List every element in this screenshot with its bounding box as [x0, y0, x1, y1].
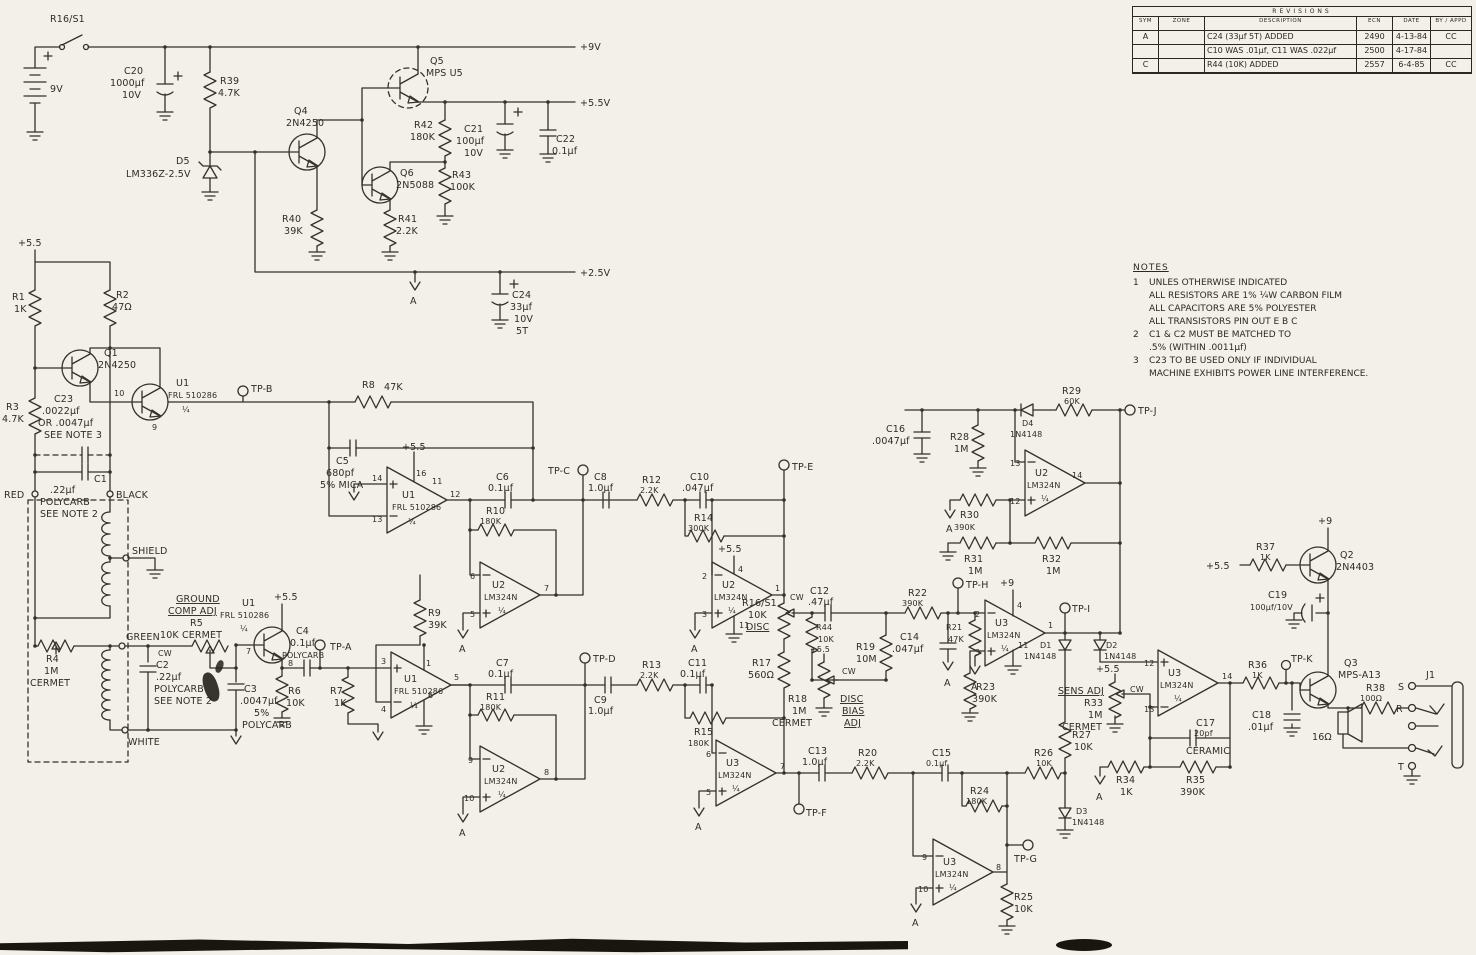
- r5-cw: CW: [158, 649, 172, 658]
- note-num: [1133, 368, 1149, 381]
- u2c-val: LM324N: [484, 777, 518, 786]
- r28-ref: R28: [950, 432, 969, 443]
- r28-symbol: [972, 425, 984, 461]
- r44-val: 10K: [818, 635, 834, 644]
- note-line: MACHINE EXHIBITS POWER LINE INTERFERENCE…: [1133, 368, 1421, 381]
- u1c-pin14: 14: [372, 474, 382, 483]
- c21-val: 100µf: [456, 136, 485, 147]
- c9-ref: C9: [594, 695, 607, 706]
- tp-k-circle: [1282, 661, 1291, 670]
- c19-val: 100µf/10V: [1250, 603, 1293, 612]
- agnd-r30-label: A: [946, 524, 953, 535]
- note-text: ALL RESISTORS ARE 1% ¼W CARBON FILM: [1149, 290, 1342, 303]
- u3b-frac: ¼: [1001, 644, 1009, 653]
- r5-ref: R5: [190, 618, 203, 629]
- tp-c-label: TP-C: [547, 466, 570, 477]
- c10-symbol: [700, 492, 706, 508]
- u3c-ref: U3: [943, 857, 956, 868]
- r38-ref: R38: [1366, 683, 1385, 694]
- tp-d-label: TP-D: [592, 654, 616, 665]
- u2b-pin3: 3: [702, 610, 707, 619]
- tp-c-circle: [578, 465, 588, 475]
- r9-symbol: [414, 600, 426, 636]
- gnd-r41: [382, 252, 398, 260]
- note-num: [1133, 342, 1149, 355]
- u1d-frac: ¼: [410, 701, 418, 710]
- c23-symbol: [82, 447, 88, 463]
- c4-symbol: [304, 660, 310, 676]
- r34-val: 1K: [1120, 787, 1133, 798]
- q4-ref: Q4: [294, 106, 308, 117]
- q6-symbol: [372, 171, 391, 200]
- r16-ref: R16/S1: [742, 598, 777, 609]
- u3d-pin12: 12: [1144, 659, 1154, 668]
- r20-ref: R20: [858, 748, 877, 759]
- rev-row-by: CC: [1431, 59, 1471, 73]
- gnd-u2b-pin11: [726, 634, 742, 642]
- note-line: .5% (WITHIN .0011µf): [1133, 342, 1421, 355]
- u1c-pin13: 13: [372, 515, 382, 524]
- q6-ref: Q6: [400, 168, 414, 179]
- r42-val: 180K: [410, 132, 436, 143]
- u1a-val: FRL 510286: [168, 391, 217, 400]
- u2a-ref: U2: [492, 580, 505, 591]
- r29-val: 60K: [1064, 397, 1080, 406]
- rev-row-sym: A: [1133, 31, 1159, 45]
- jack-t-contact: [1409, 763, 1416, 770]
- r11-val: 180K: [480, 703, 502, 712]
- r25-val: 10K: [1014, 904, 1033, 915]
- p55-r18: +5.5: [810, 645, 830, 654]
- r12-val: 2.2K: [640, 486, 659, 495]
- q1-ref: Q1: [104, 348, 118, 359]
- r36-ref: R36: [1248, 660, 1267, 671]
- speaker-symbol: [1338, 704, 1362, 742]
- r9-ref: R9: [428, 608, 441, 619]
- sens-adj-label: SENS ADJ: [1058, 686, 1104, 697]
- r34-symbol: [1108, 761, 1144, 773]
- tp-g-label: TP-G: [1013, 854, 1037, 865]
- q3-ref: Q3: [1344, 658, 1358, 669]
- p55-u1b: +5.5: [274, 592, 298, 603]
- c5-val: 680pf: [326, 468, 355, 479]
- r26-ref: R26: [1034, 748, 1053, 759]
- r44-ref: R44: [816, 623, 832, 632]
- c3-note: POLYCARB: [242, 720, 292, 731]
- r35-val: 390K: [1180, 787, 1206, 798]
- c7-ref: C7: [496, 658, 509, 669]
- u2c-pin8: 8: [544, 768, 549, 777]
- agnd-u3a-label: A: [695, 822, 702, 833]
- red-lead-label: RED: [4, 490, 24, 501]
- u1d-pin5: 5: [454, 673, 459, 682]
- c16-symbol: [914, 432, 930, 438]
- c17-ref: C17: [1196, 718, 1215, 729]
- gnd-jack-t: [1404, 776, 1420, 784]
- tp-e-label: TP-E: [791, 462, 813, 473]
- r18-ref: R18: [788, 694, 807, 705]
- rev-row-desc: R44 (10K) ADDED: [1205, 59, 1357, 73]
- q2-val: 2N4403: [1336, 562, 1374, 573]
- r8-symbol: [355, 396, 391, 408]
- p9-q2: +9: [1318, 516, 1332, 527]
- c6-val: 0.1µf: [488, 483, 514, 494]
- r30-symbol: [960, 494, 996, 506]
- u2b-pin2: 2: [702, 572, 707, 581]
- r10-val: 180K: [480, 517, 502, 526]
- r33-val: 1M: [1088, 710, 1103, 721]
- p55-left: +5.5: [18, 238, 42, 249]
- d3-symbol: [1059, 808, 1071, 818]
- c1-val: .22µf: [50, 485, 76, 496]
- u3a-pin7: 7: [780, 762, 785, 771]
- gnd-r23: [962, 713, 978, 721]
- r38-symbol: [1361, 702, 1397, 714]
- agnd-u3c-label: A: [912, 918, 919, 929]
- c18-symbol: [1284, 714, 1300, 720]
- q2-ref: Q2: [1340, 550, 1354, 561]
- c23-val: .0022µf: [42, 406, 80, 417]
- gnd-u3b-pin11: [1005, 666, 1021, 674]
- agnd-r21: [970, 666, 980, 674]
- u1a-pin10: 10: [114, 389, 124, 398]
- u1c-frac: ¼: [408, 517, 416, 526]
- note-line: 2C1 & C2 MUST BE MATCHED TO: [1133, 329, 1421, 342]
- tp-b-label: TP-B: [250, 384, 273, 395]
- r42-symbol: [439, 120, 451, 156]
- gnd-shield: [147, 570, 163, 578]
- r19-ref: R19: [856, 642, 875, 653]
- note-line: 1UNLES OTHERWISE INDICATED: [1133, 277, 1421, 290]
- r15-ref: R15: [694, 727, 713, 738]
- c9-symbol: [605, 677, 611, 693]
- tp-h-label: TP-H: [965, 580, 989, 591]
- u2d-val: LM324N: [1027, 481, 1061, 490]
- gnd-c20: [157, 112, 173, 120]
- u1a-symbol: [142, 388, 161, 417]
- u2c-frac: ¼: [498, 790, 506, 799]
- c1-extra: POLYCARB: [40, 497, 90, 508]
- r13-val: 2.2K: [640, 671, 659, 680]
- u1c-pin11: 11: [432, 477, 442, 486]
- u2b-pin1: 1: [775, 584, 780, 593]
- r27-val: 10K: [1074, 742, 1093, 753]
- c10-val: .047µf: [682, 483, 714, 494]
- c13-ref: C13: [808, 746, 827, 757]
- u3d-pin14: 14: [1222, 672, 1232, 681]
- tp-j-circle: [1125, 405, 1135, 415]
- r18-extra: CERMET: [772, 718, 812, 729]
- u1a-frac: ¼: [182, 405, 190, 414]
- u3b-ref: U3: [995, 618, 1008, 629]
- u1d-ref: U1: [404, 674, 417, 685]
- u1d-polarity: [394, 665, 401, 702]
- c15-ref: C15: [932, 748, 951, 759]
- c5-extra: 5% MICA: [320, 480, 364, 491]
- gnd-d5: [202, 192, 218, 200]
- wire-net-output: [1100, 528, 1452, 776]
- sw-ref: R16/S1: [50, 14, 85, 25]
- schematic-canvas: R16/S1 9V C201000µf10V R394.7K D5LM336Z-…: [0, 0, 1476, 955]
- u3d-ref: U3: [1168, 668, 1181, 679]
- u2b-pin4: 4: [738, 565, 743, 574]
- disc-bias-2: BIAS: [842, 706, 864, 717]
- r42-ref: R42: [414, 120, 433, 131]
- rev-row-by: [1431, 45, 1471, 59]
- c15-val: 0.1µf: [926, 759, 947, 768]
- r33-wiper-arrow: [1116, 690, 1128, 698]
- r7-ref: R7: [330, 686, 343, 697]
- r26-val: 10K: [1036, 759, 1052, 768]
- agnd-u2a-label: A: [459, 644, 466, 655]
- note-num: 3: [1133, 355, 1149, 368]
- d1-ref: D1: [1040, 641, 1052, 650]
- c17-val: 20pf: [1194, 729, 1213, 738]
- u3b-pin4: 4: [1017, 601, 1022, 610]
- c18-val: .01µf: [1248, 722, 1274, 733]
- u1d-pin4: 4: [381, 705, 386, 714]
- agnd-r7: [373, 732, 383, 740]
- agnd-c3: [231, 736, 241, 744]
- j1-t-label: T: [1397, 762, 1404, 773]
- r5-val: 10K CERMET: [160, 630, 222, 641]
- u2a-pin5: 5: [470, 610, 475, 619]
- c19-ref: C19: [1268, 590, 1287, 601]
- battery-label: 9V: [50, 84, 63, 95]
- red-lead-contact: [32, 491, 38, 497]
- p55-u2b: +5.5: [718, 544, 742, 555]
- r13-symbol: [637, 679, 673, 691]
- q5-val: MPS U5: [426, 68, 463, 79]
- d2-ref: D2: [1106, 641, 1118, 650]
- c24-val: 33µf: [510, 302, 533, 313]
- u2a-pin6: 6: [470, 572, 475, 581]
- c17-extra: CERAMIC: [1186, 746, 1230, 757]
- r6-ref: R6: [288, 686, 301, 697]
- c2-extra: POLYCARB: [154, 684, 204, 695]
- d4-ref: D4: [1022, 419, 1034, 428]
- c6-symbol: [505, 492, 511, 508]
- rail-label-5v5: +5.5V: [580, 98, 611, 109]
- gnd-r40: [309, 252, 325, 260]
- d3-ref: D3: [1076, 807, 1088, 816]
- q4-symbol: [299, 138, 318, 167]
- r31-val: 1M: [968, 566, 983, 577]
- r15-symbol: [690, 712, 726, 724]
- agnd-u3a: [694, 808, 704, 816]
- c11-ref: C11: [688, 658, 707, 669]
- u1a-ref: U1: [176, 378, 189, 389]
- r20-val: 2.2K: [856, 759, 875, 768]
- r40-ref: R40: [282, 214, 301, 225]
- r6-val: 10K: [286, 698, 305, 709]
- r40-val: 39K: [284, 226, 303, 237]
- r36-val: 1K: [1252, 671, 1263, 680]
- rev-row-date: 6-4-85: [1393, 59, 1431, 73]
- agnd-u2b: [690, 630, 700, 638]
- tp-j-label: TP-J: [1137, 406, 1157, 417]
- rail-label-2v5: +2.5V: [580, 268, 611, 279]
- r22-ref: R22: [908, 588, 927, 599]
- c2-ref: C2: [156, 660, 169, 671]
- r26-symbol: [1025, 767, 1061, 779]
- r16-cw: CW: [790, 593, 804, 602]
- u2d-pin12: 12: [1010, 497, 1020, 506]
- white-lead-contact: [122, 727, 128, 733]
- c21-ref: C21: [464, 124, 483, 135]
- agnd-c14-label: A: [944, 678, 951, 689]
- c2-symbol: [140, 666, 156, 672]
- r16-extra: DISC: [746, 622, 770, 633]
- jack-body: [1452, 682, 1463, 768]
- r41-val: 2.2K: [396, 226, 419, 237]
- agnd-r34-label: A: [1096, 792, 1103, 803]
- q1-val: 2N4250: [98, 360, 136, 371]
- jack-s-contact: [1409, 683, 1416, 690]
- c5-ref: C5: [336, 456, 349, 467]
- r22-symbol: [905, 607, 941, 619]
- note-text: ALL CAPACITORS ARE 5% POLYESTER: [1149, 303, 1316, 316]
- u2c-pin9: 9: [468, 756, 473, 765]
- note-text: UNLES OTHERWISE INDICATED: [1149, 277, 1287, 290]
- rev-col-desc: DESCRIPTION: [1205, 17, 1357, 31]
- u1b-frac: ¼: [240, 624, 248, 633]
- note-num: [1133, 290, 1149, 303]
- scan-smudge-bottom-right: [1056, 939, 1112, 951]
- r40-symbol: [311, 210, 323, 246]
- shield-lead-label: SHIELD: [132, 546, 168, 557]
- u1b-symbol: [264, 631, 283, 660]
- rev-row-desc: C10 WAS .01µf, C11 WAS .022µf: [1205, 45, 1357, 59]
- u3d-val: LM324N: [1160, 681, 1194, 690]
- r14-val: 300K: [688, 524, 710, 533]
- d3-val: 1N4148: [1072, 818, 1104, 827]
- note-num: [1133, 303, 1149, 316]
- d5-ref: D5: [176, 156, 190, 167]
- r33-pot-symbol: [1109, 682, 1121, 718]
- rev-row-ecn: 2557: [1357, 59, 1393, 73]
- note-num: 2: [1133, 329, 1149, 342]
- c12-val: .47µf: [808, 597, 834, 608]
- u2d-pin14: 14: [1072, 471, 1082, 480]
- r35-symbol: [1180, 761, 1216, 773]
- d2-symbol: [1094, 640, 1106, 650]
- agnd-rail: [410, 282, 420, 290]
- u1b-pin7: 7: [246, 647, 251, 656]
- agnd-u1c: [349, 492, 359, 500]
- c24-extra: 10V: [514, 314, 533, 325]
- r3-val: 4.7K: [2, 414, 25, 425]
- c23-note: SEE NOTE 3: [44, 430, 102, 441]
- agnd-r34: [1095, 776, 1105, 784]
- c10-ref: C10: [690, 472, 709, 483]
- c8-val: 1.0µf: [588, 483, 614, 494]
- rev-row-ecn: 2490: [1357, 31, 1393, 45]
- r31-ref: R31: [964, 554, 983, 565]
- c4-ref: C4: [296, 626, 309, 637]
- rev-col-ecn: ECN: [1357, 17, 1393, 31]
- d2-val: 1N4148: [1104, 652, 1136, 661]
- j1-ref: J1: [1425, 670, 1435, 681]
- p55-r33: +5.5: [1096, 664, 1120, 675]
- c19-symbol: [1302, 604, 1313, 622]
- white-lead-label: WHITE: [128, 737, 160, 748]
- rev-row-date: 4-13-84: [1393, 31, 1431, 45]
- c3-symbol: [228, 684, 244, 690]
- u1b-val: FRL 510286: [220, 611, 269, 620]
- u1c-val: FRL 510286: [392, 503, 441, 512]
- u2d-ref: U2: [1035, 468, 1048, 479]
- component-symbols: [24, 45, 1463, 935]
- c1-note: SEE NOTE 2: [40, 509, 98, 520]
- gnd-u1d-pin6: [416, 726, 432, 734]
- r8-ref: R8: [362, 380, 375, 391]
- c2-note: SEE NOTE 2: [154, 696, 212, 707]
- tp-a-circle: [315, 640, 325, 650]
- q1-symbol: [72, 354, 91, 383]
- revisions-table: REVISIONS SYM ZONE DESCRIPTION ECN DATE …: [1132, 6, 1472, 74]
- u3a-ref: U3: [726, 758, 739, 769]
- tx-coil-lower-symbol: [102, 562, 110, 606]
- u3c-pin10: 10: [918, 885, 928, 894]
- revisions-title: REVISIONS: [1133, 7, 1471, 17]
- p55-r37: +5.5: [1206, 561, 1230, 572]
- r37-ref: R37: [1256, 542, 1275, 553]
- r20-symbol: [852, 767, 888, 779]
- r3-ref: R3: [6, 402, 19, 413]
- battery-9v-symbol: [24, 68, 46, 103]
- tp-f-label: TP-F: [805, 808, 827, 819]
- r35-ref: R35: [1186, 775, 1205, 786]
- gnd-c21: [497, 150, 513, 158]
- note-line: 3C23 TO BE USED ONLY IF INDIVIDUAL: [1133, 355, 1421, 368]
- r1-val: 1K: [14, 304, 27, 315]
- u2a-val: LM324N: [484, 593, 518, 602]
- c23-ref: C23: [54, 394, 73, 405]
- u2d-frac: ¼: [1041, 494, 1049, 503]
- c1-ref: C1: [94, 474, 107, 485]
- q5-ref: Q5: [430, 56, 444, 67]
- r37-val: 1K: [1260, 553, 1271, 562]
- c2-val: .22µf: [156, 672, 182, 683]
- r28-val: 1M: [954, 444, 969, 455]
- c24-note: 5T: [516, 326, 528, 337]
- note-text: MACHINE EXHIBITS POWER LINE INTERFERENCE…: [1149, 368, 1368, 381]
- rev-row-desc: C24 (33µf 5T) ADDED: [1205, 31, 1357, 45]
- rev-col-sym: SYM: [1133, 17, 1159, 31]
- p9-u3b: +9: [1000, 578, 1014, 589]
- d1-symbol: [1059, 640, 1071, 650]
- gnd-r25: [999, 926, 1015, 934]
- r25-ref: R25: [1014, 892, 1033, 903]
- tp-i-label: TP-I: [1071, 604, 1090, 615]
- u3a-pin6: 6: [706, 750, 711, 759]
- c6-ref: C6: [496, 472, 509, 483]
- rev-row-zone: [1159, 31, 1205, 45]
- q3-val: MPS-A13: [1338, 670, 1381, 681]
- tp-i-circle: [1060, 603, 1070, 613]
- wire-net-left: [35, 250, 391, 736]
- rev-row-sym: [1133, 45, 1159, 59]
- c4-val: 0.1µf: [290, 638, 316, 649]
- r22-val: 390K: [902, 599, 924, 608]
- agnd-u2c-label: A: [459, 828, 466, 839]
- agnd-rail-label: A: [410, 296, 417, 307]
- r31-symbol: [960, 537, 996, 549]
- junction-dots: [33, 45, 1350, 847]
- rev-row-date: 4-17-84: [1393, 45, 1431, 59]
- r30-val: 390K: [954, 523, 976, 532]
